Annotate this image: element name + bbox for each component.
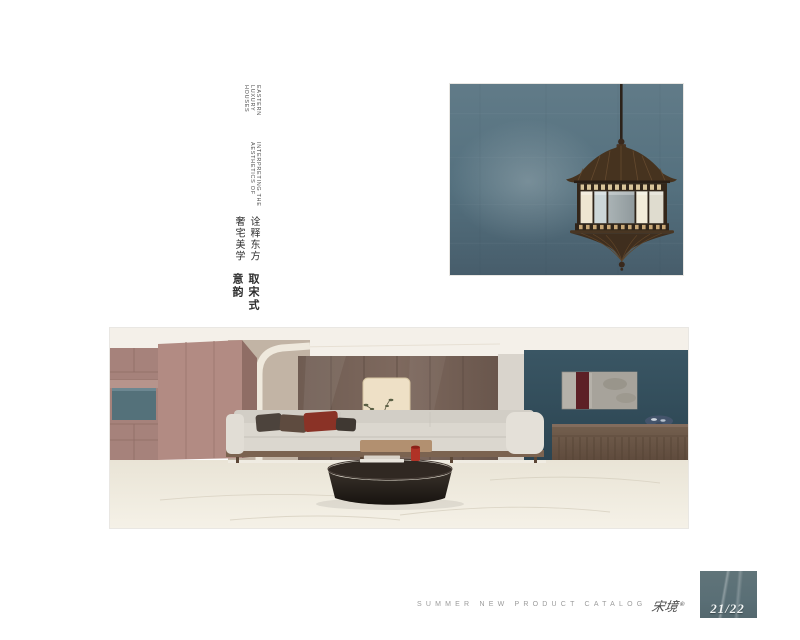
wall-artwork [562,372,637,409]
title-en-line2: INTERPRETING THE AESTHETICS OF [227,142,261,216]
title-cn-subtitle: 诠释东方奢宅美学 [230,216,261,273]
lantern-illustration [450,84,683,275]
lantern-photo [449,83,684,276]
sofa [226,410,544,463]
title-cn-main: 取宋式意韵 [229,273,261,314]
title-en-line1: EASTERN LUXURY HOUSES [227,85,261,141]
lantern-upper-lattice [577,183,667,191]
lantern-cord [620,84,623,140]
red-cup [411,447,420,461]
page-title-block: EASTERN LUXURY HOUSES INTERPRETING THE A… [214,84,261,314]
lantern-lower-lattice [570,223,674,233]
cabinet-teal-inset [112,388,156,420]
catalog-page: EASTERN LUXURY HOUSES INTERPRETING THE A… [0,0,800,640]
tile-swatch: 21/22 [700,571,757,618]
brand-logo: 宋境® [650,596,686,615]
brand-logo-text: 宋境 [650,600,679,615]
living-room-illustration [110,328,688,528]
catalog-footer-label: SUMMER NEW PRODUCT CATALOG [417,601,646,608]
brand-trademark: ® [679,601,686,608]
sofa-center-bench [360,440,432,452]
page-number: 21/22 [700,601,755,617]
living-room-photo [109,327,689,529]
